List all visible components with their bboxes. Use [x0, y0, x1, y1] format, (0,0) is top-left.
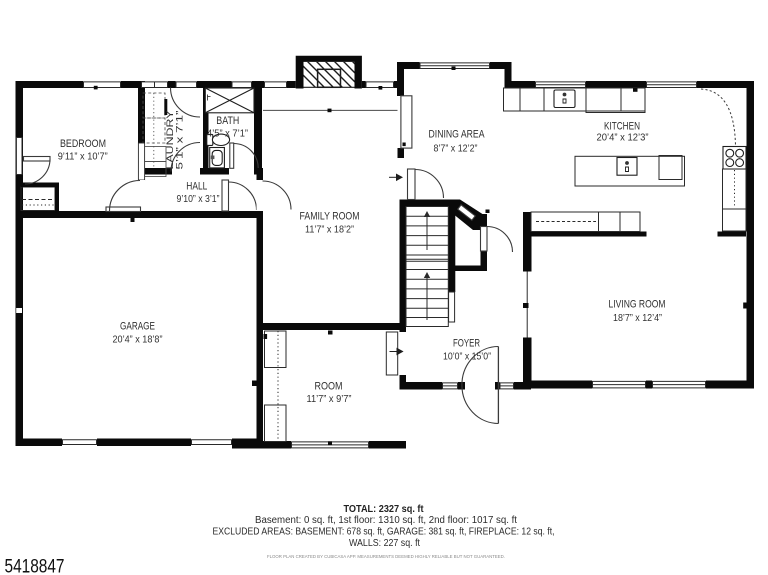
svg-text:BATH: BATH	[216, 115, 239, 127]
svg-text:9’11” x 10’7”: 9’11” x 10’7”	[58, 151, 108, 163]
svg-text:20’4” x 12’3”: 20’4” x 12’3”	[597, 132, 649, 144]
svg-text:Basement: 0 sq. ft, 1st floor:: Basement: 0 sq. ft, 1st floor: 1310 sq. …	[255, 515, 517, 526]
svg-text:11’7” x 18’2”: 11’7” x 18’2”	[305, 224, 354, 236]
svg-text:10’0” x 15’0”: 10’0” x 15’0”	[443, 351, 491, 363]
svg-text:EXCLUDED AREAS: BASEMENT: 678: EXCLUDED AREAS: BASEMENT: 678 sq. ft, GA…	[213, 526, 555, 537]
svg-text:WALLS: 227 sq. ft: WALLS: 227 sq. ft	[349, 538, 420, 549]
svg-text:FAMILY ROOM: FAMILY ROOM	[300, 211, 360, 223]
svg-text:4’5” x 7’1”: 4’5” x 7’1”	[207, 128, 248, 140]
svg-text:20’4” x 18’8”: 20’4” x 18’8”	[113, 334, 163, 346]
svg-text:FOYER: FOYER	[453, 338, 480, 350]
svg-text:TOTAL: 2327 sq. ft: TOTAL: 2327 sq. ft	[344, 503, 424, 515]
svg-text:5418847: 5418847	[5, 556, 65, 575]
svg-text:LIVING ROOM: LIVING ROOM	[609, 299, 666, 311]
svg-text:9’10” x 3’1”: 9’10” x 3’1”	[177, 193, 220, 205]
svg-text:DINING AREA: DINING AREA	[429, 129, 486, 141]
svg-text:8’7” x 12’2”: 8’7” x 12’2”	[434, 143, 478, 155]
svg-text:ROOM: ROOM	[315, 381, 343, 393]
svg-text:FLOOR PLAN CREATED BY CUBICASA: FLOOR PLAN CREATED BY CUBICASA APP. MEAS…	[267, 554, 505, 559]
svg-text:18’7” x 12’4”: 18’7” x 12’4”	[613, 312, 662, 324]
svg-text:11’7” x 9’7”: 11’7” x 9’7”	[307, 393, 352, 405]
svg-text:5’1” x 7’1”: 5’1” x 7’1”	[174, 111, 184, 170]
svg-text:GARAGE: GARAGE	[120, 321, 155, 333]
svg-text:BEDROOM: BEDROOM	[60, 138, 106, 150]
svg-text:HALL: HALL	[186, 181, 207, 193]
